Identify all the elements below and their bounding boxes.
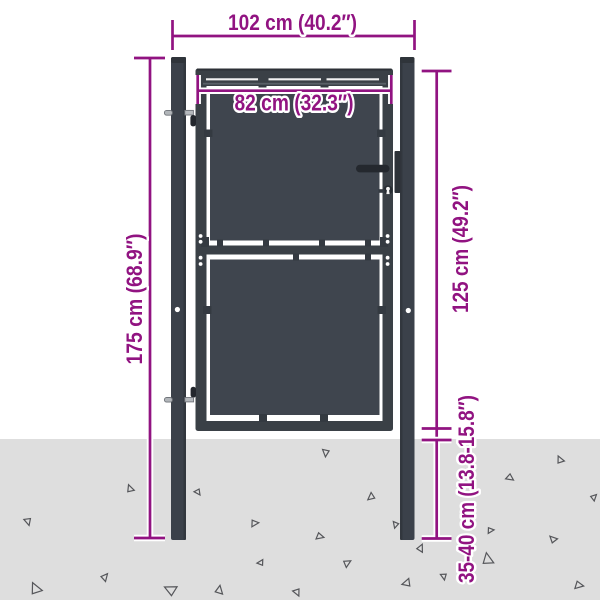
svg-text:35-40 cm (13.8-15.8″): 35-40 cm (13.8-15.8″): [454, 395, 479, 583]
svg-text:125 cm (49.2″): 125 cm (49.2″): [448, 185, 473, 313]
svg-text:175 cm (68.9″): 175 cm (68.9″): [122, 234, 147, 365]
svg-text:82 cm (32.3″): 82 cm (32.3″): [235, 90, 354, 116]
svg-text:102 cm (40.2″): 102 cm (40.2″): [228, 10, 357, 35]
